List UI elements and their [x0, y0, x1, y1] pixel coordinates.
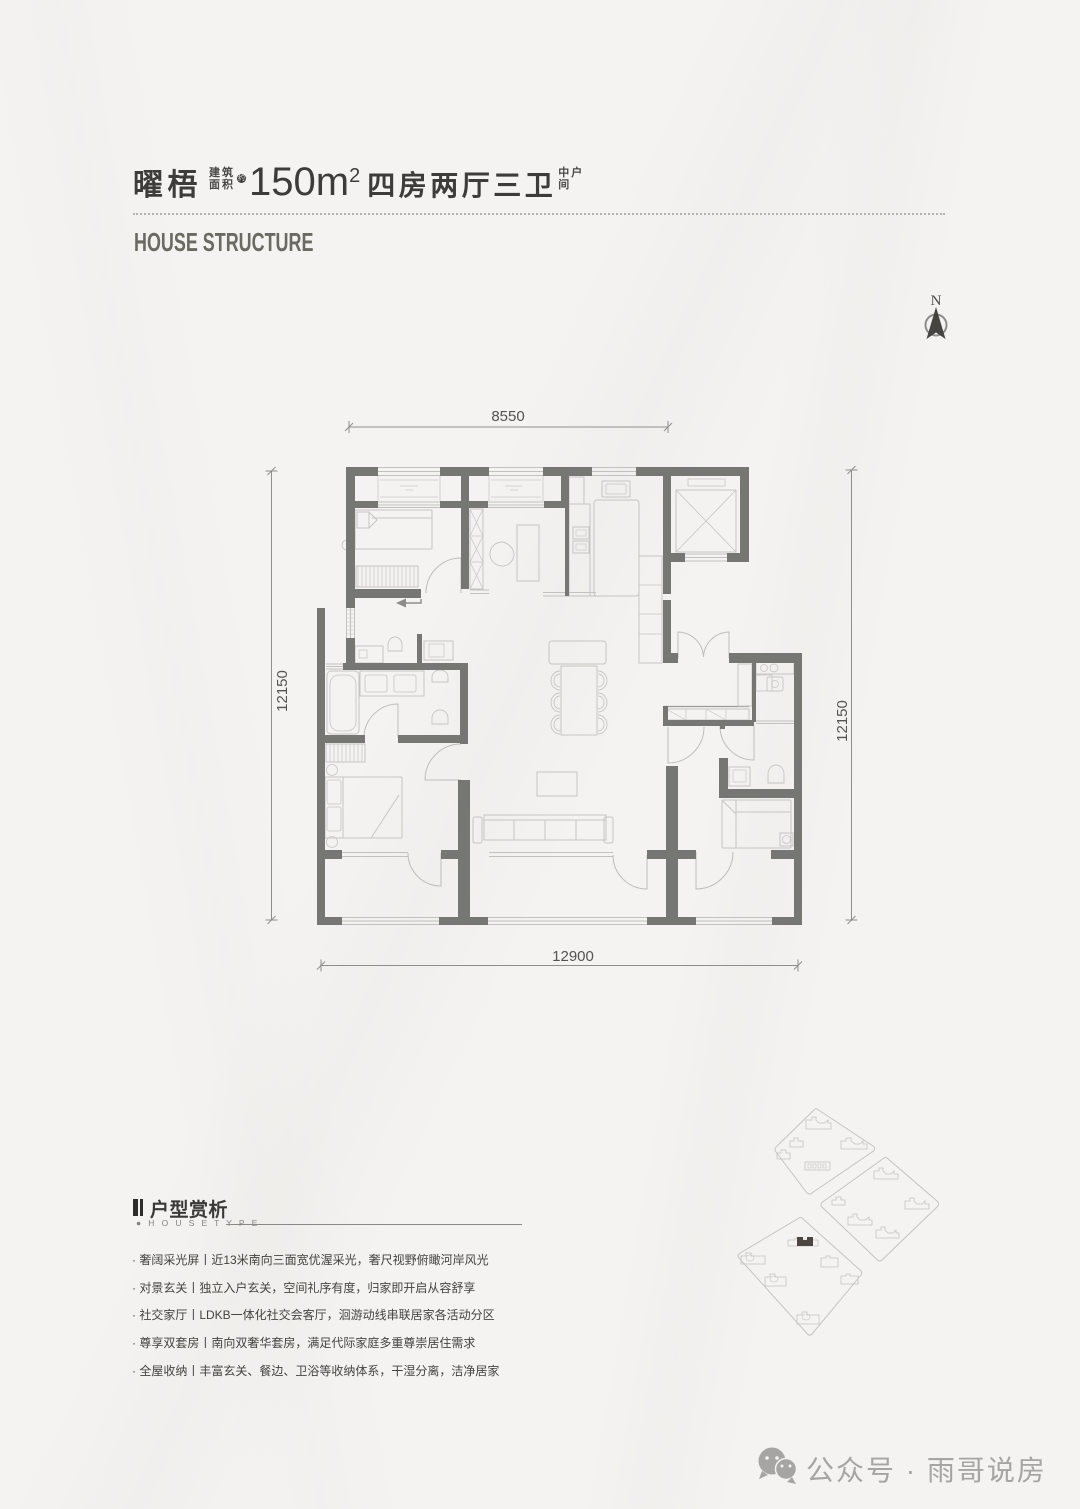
svg-text:8550: 8550 — [491, 408, 524, 425]
svg-text:12150: 12150 — [834, 700, 851, 742]
svg-text:12900: 12900 — [552, 948, 594, 965]
svg-text:12150: 12150 — [274, 670, 291, 712]
svg-text:N: N — [931, 293, 942, 309]
